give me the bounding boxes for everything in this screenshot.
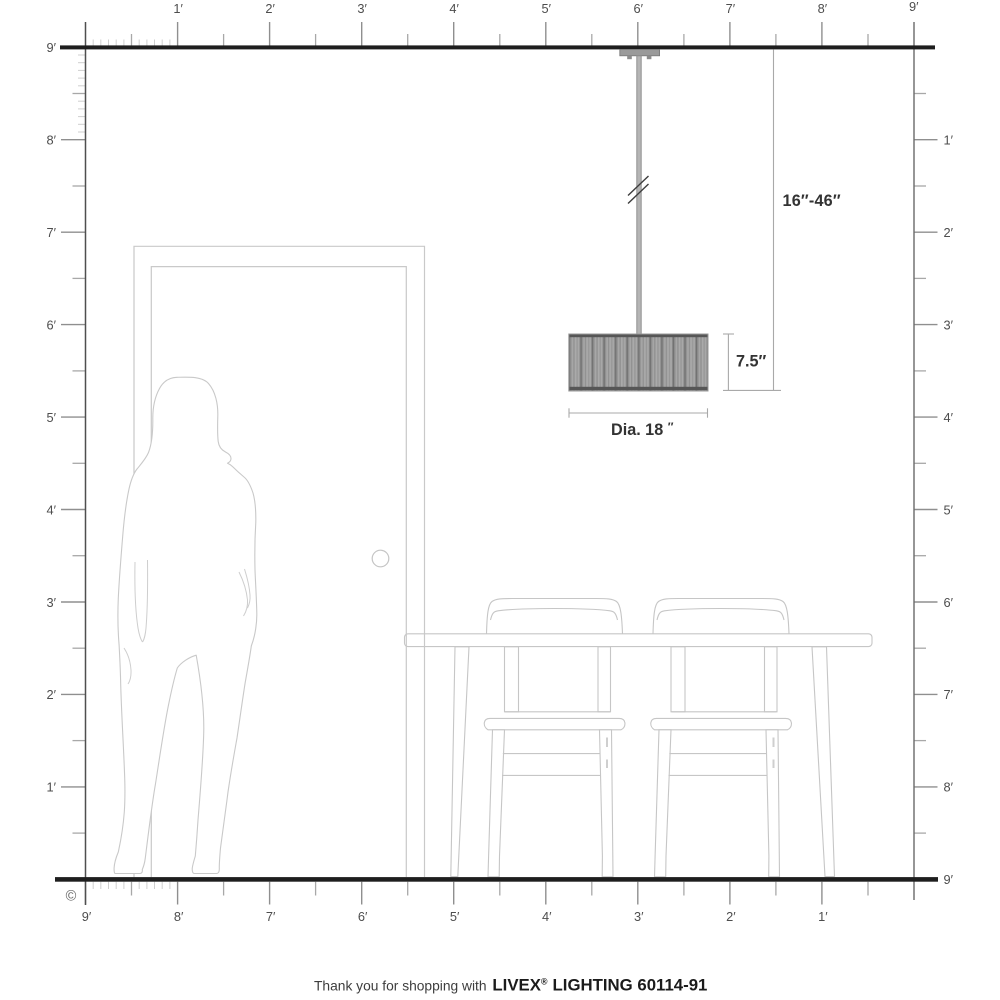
svg-text:7.5″: 7.5″ [736, 353, 767, 371]
svg-text:1′: 1′ [173, 1, 183, 16]
svg-text:3′: 3′ [46, 595, 56, 610]
svg-text:2′: 2′ [265, 1, 275, 16]
svg-text:9′: 9′ [46, 40, 56, 55]
svg-text:8′: 8′ [174, 909, 184, 924]
svg-text:8′: 8′ [818, 1, 828, 16]
svg-text:3′: 3′ [944, 317, 954, 332]
svg-text:5′: 5′ [46, 410, 56, 425]
svg-text:1′: 1′ [818, 909, 828, 924]
svg-text:5′: 5′ [542, 1, 552, 16]
svg-text:Dia. 18 ″: Dia. 18 ″ [611, 420, 674, 439]
svg-text:3′: 3′ [357, 1, 367, 16]
svg-text:Thank you for shopping with LI: Thank you for shopping with LIVEX®LIGHTI… [314, 976, 707, 995]
svg-text:2′: 2′ [46, 687, 56, 702]
svg-text:©: © [66, 889, 77, 905]
svg-text:16″-46″: 16″-46″ [783, 192, 841, 210]
svg-text:7′: 7′ [266, 909, 276, 924]
svg-text:6′: 6′ [944, 595, 954, 610]
svg-text:4′: 4′ [944, 410, 954, 425]
svg-text:2′: 2′ [726, 909, 736, 924]
svg-text:4′: 4′ [542, 909, 552, 924]
svg-text:3′: 3′ [634, 909, 644, 924]
svg-text:8′: 8′ [944, 780, 954, 795]
svg-text:6′: 6′ [46, 317, 56, 332]
svg-text:7′: 7′ [726, 1, 736, 16]
svg-text:9′: 9′ [909, 0, 919, 14]
svg-text:1′: 1′ [944, 133, 954, 148]
svg-text:2′: 2′ [944, 225, 954, 240]
svg-text:7′: 7′ [46, 225, 56, 240]
svg-text:9′: 9′ [82, 909, 92, 924]
svg-text:1′: 1′ [46, 780, 56, 795]
svg-text:4′: 4′ [46, 502, 56, 517]
svg-text:8′: 8′ [46, 133, 56, 148]
svg-text:6′: 6′ [358, 909, 368, 924]
svg-text:5′: 5′ [944, 502, 954, 517]
svg-text:7′: 7′ [944, 687, 954, 702]
svg-text:5′: 5′ [450, 909, 460, 924]
svg-text:9′: 9′ [944, 872, 954, 887]
svg-text:4′: 4′ [449, 1, 459, 16]
svg-text:6′: 6′ [634, 1, 644, 16]
